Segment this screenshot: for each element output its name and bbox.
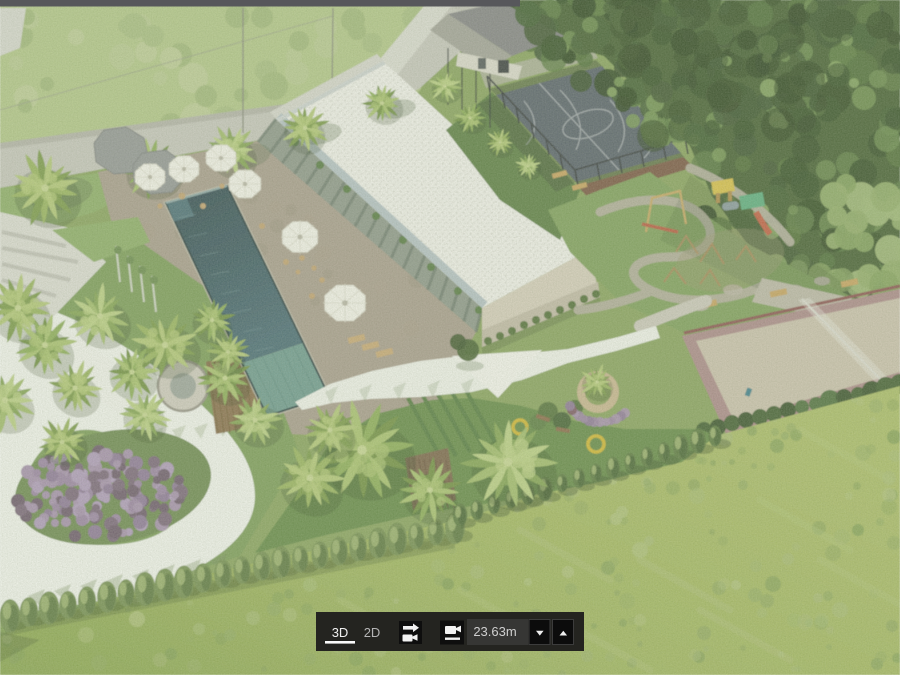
svg-text:3D: 3D xyxy=(332,625,349,640)
svg-text:23.63m: 23.63m xyxy=(473,624,516,639)
svg-text:2D: 2D xyxy=(364,625,381,640)
